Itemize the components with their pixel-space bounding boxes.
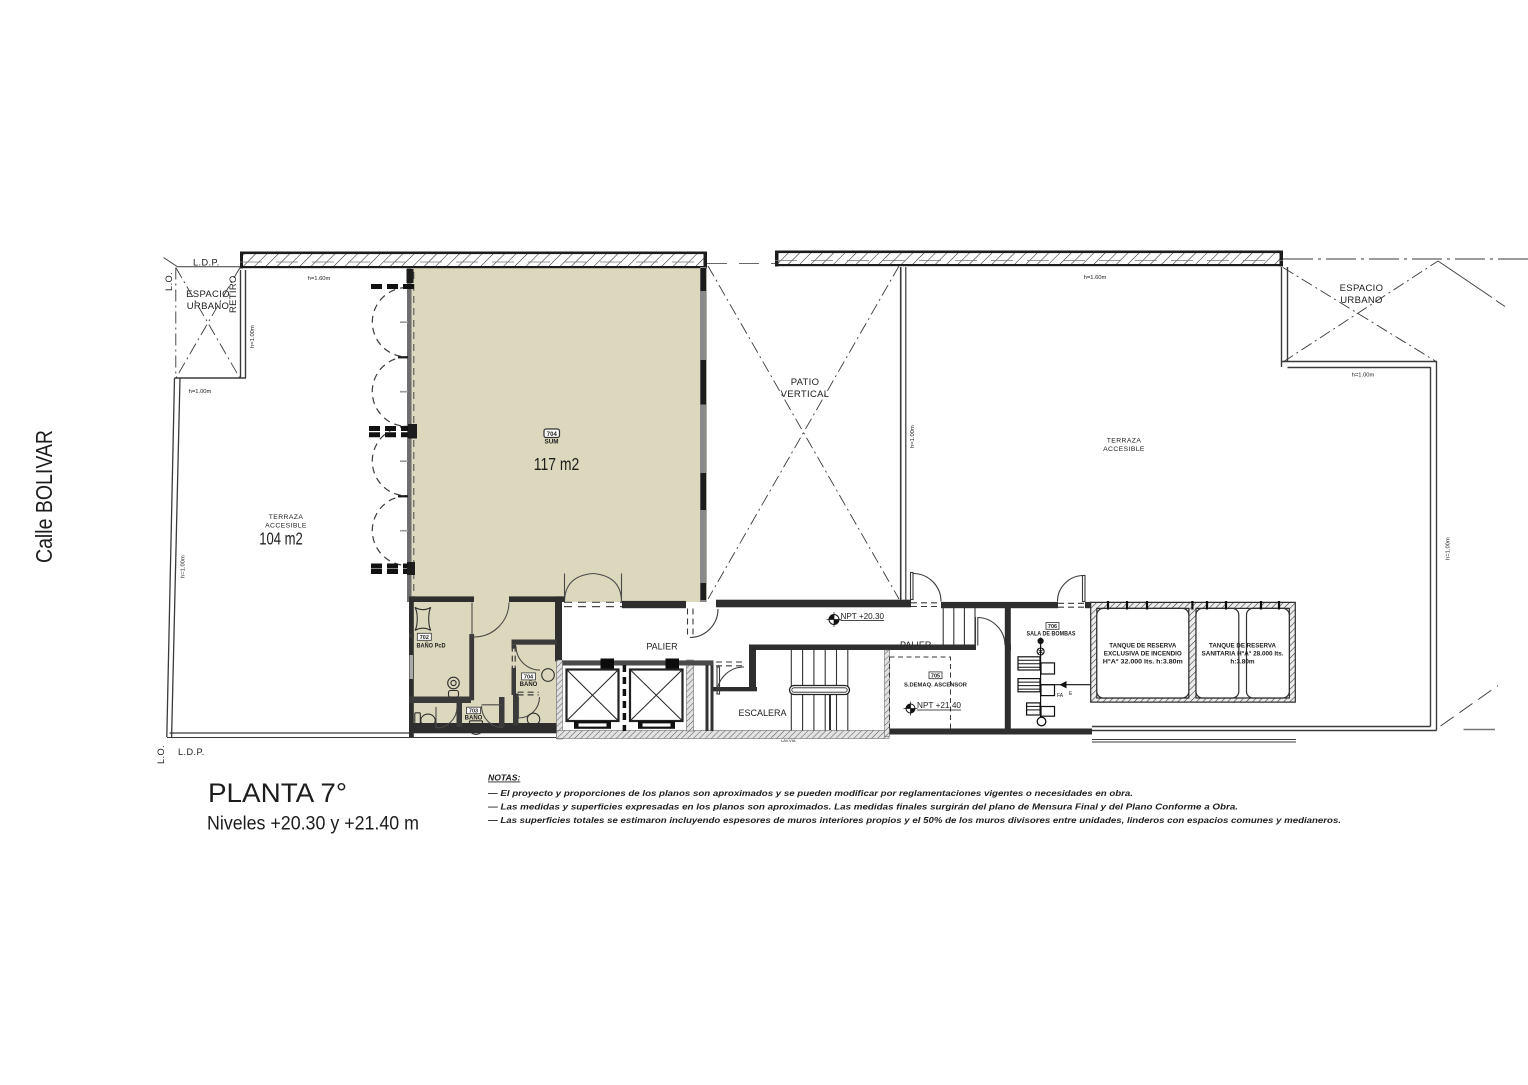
svg-text:VERTICAL: VERTICAL — [781, 389, 830, 400]
svg-text:h=1.00m: h=1.00m — [1446, 537, 1452, 560]
svg-text:NOTAS:: NOTAS: — [488, 773, 520, 783]
svg-text:L.O.: L.O. — [164, 272, 174, 291]
svg-text:BAÑO: BAÑO — [520, 681, 538, 688]
svg-text:PALIER: PALIER — [646, 642, 678, 652]
svg-text:URBANO: URBANO — [1340, 295, 1382, 306]
svg-text:705: 705 — [931, 674, 940, 680]
svg-text:ESCALERA: ESCALERA — [738, 708, 786, 718]
svg-text:S.DEMAQ. ASCENSOR: S.DEMAQ. ASCENSOR — [904, 683, 968, 689]
svg-text:h=1.60m: h=1.60m — [308, 276, 331, 282]
svg-text:URBANO: URBANO — [187, 301, 229, 312]
svg-text:— El proyecto y proporcion: — El proyecto y proporciones de los plan… — [487, 788, 1133, 798]
svg-text:117 m2: 117 m2 — [534, 454, 580, 474]
svg-text:h=1.00m: h=1.00m — [1352, 373, 1375, 379]
svg-text:TANQUE DE RESERVA: TANQUE DE RESERVA — [1209, 643, 1276, 650]
svg-text:EXCLUSIVA DE INCENDIO: EXCLUSIVA DE INCENDIO — [1104, 651, 1182, 658]
svg-text:SALA DE BOMBAS: SALA DE BOMBAS — [1027, 632, 1076, 638]
svg-text:TERRAZA: TERRAZA — [1107, 438, 1142, 445]
svg-text:L.D.P.: L.D.P. — [193, 258, 220, 268]
svg-text:704: 704 — [524, 675, 534, 681]
svg-text:H°A° 32.000 lts. h:3.80m: H°A° 32.000 lts. h:3.80m — [1103, 658, 1183, 666]
svg-text:h=1.00m: h=1.00m — [910, 425, 916, 448]
svg-text:SUM: SUM — [545, 439, 559, 446]
svg-text:L.D.P.: L.D.P. — [178, 747, 205, 757]
svg-text:Calle BOLIVAR: Calle BOLIVAR — [31, 430, 57, 563]
svg-text:L.O.: L.O. — [156, 745, 166, 764]
svg-text:h=1.60m: h=1.60m — [1084, 275, 1107, 281]
svg-text:NPT +21.40: NPT +21.40 — [917, 700, 961, 710]
svg-text:TANQUE DE RESERVA: TANQUE DE RESERVA — [1109, 643, 1176, 650]
svg-text:Niveles +20.30 y +21.40 m: Niveles +20.30 y +21.40 m — [207, 813, 419, 835]
svg-text:104 m2: 104 m2 — [259, 529, 303, 549]
svg-text:PLANTA 7°: PLANTA 7° — [208, 778, 347, 808]
svg-text:— Las medidas y superficie: — Las medidas y superficies expresadas e… — [487, 802, 1238, 812]
svg-text:BAÑO PcD: BAÑO PcD — [417, 643, 447, 650]
svg-text:ACCESIBLE: ACCESIBLE — [1103, 446, 1145, 453]
svg-text:SANITARIA H°A° 28.000 lts.: SANITARIA H°A° 28.000 lts. — [1202, 650, 1284, 658]
svg-text:706: 706 — [1048, 624, 1057, 630]
svg-text:703: 703 — [469, 709, 478, 715]
svg-text:BAÑO: BAÑO — [465, 715, 483, 722]
svg-text:h=1.00m: h=1.00m — [181, 555, 187, 578]
svg-text:702: 702 — [420, 635, 429, 641]
svg-text:FA: FA — [1057, 693, 1064, 699]
svg-text:PATIO: PATIO — [791, 377, 820, 388]
svg-text:RETIRO: RETIRO — [228, 275, 239, 313]
svg-text:LAV.VIA.: LAV.VIA. — [781, 738, 797, 743]
svg-text:ESPACIO: ESPACIO — [1340, 283, 1384, 294]
svg-text:TERRAZA: TERRAZA — [269, 514, 304, 521]
svg-text:704: 704 — [547, 432, 558, 438]
svg-text:h=1.00m: h=1.00m — [189, 389, 212, 395]
svg-text:NPT +20.30: NPT +20.30 — [841, 611, 885, 621]
svg-text:h:3.80m: h:3.80m — [1230, 659, 1254, 666]
svg-text:ESPACIO: ESPACIO — [186, 289, 230, 300]
svg-text:— Las superficies totales: — Las superficies totales se estimaron i… — [487, 815, 1341, 825]
svg-text:h=1.00m: h=1.00m — [250, 325, 256, 348]
